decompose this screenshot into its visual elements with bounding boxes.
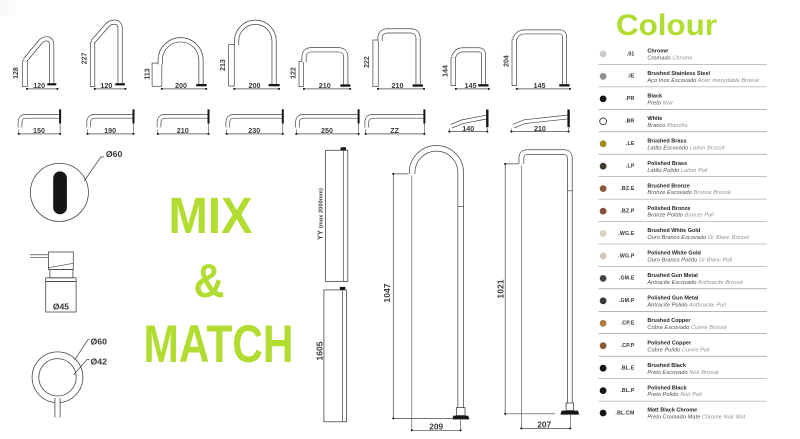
svg-text:113: 113: [144, 68, 151, 79]
svg-text:1047: 1047: [382, 283, 392, 302]
svg-text:Bronze Escovado Bronze Brossé: Bronze Escovado Bronze Brossé: [647, 190, 731, 196]
svg-text:Polished Gun Metal: Polished Gun Metal: [647, 296, 699, 302]
svg-text:.CP.E: .CP.E: [621, 321, 635, 327]
svg-text:Polished Brass: Polished Brass: [647, 161, 687, 167]
svg-text:Polished White Gold: Polished White Gold: [647, 251, 700, 257]
svg-text:Cobre Escovado Cuivre Brossé: Cobre Escovado Cuivre Brossé: [647, 325, 727, 331]
svg-text:Brushed Bronze: Brushed Bronze: [647, 183, 689, 189]
svg-text:Brushed Stainless Steel: Brushed Stainless Steel: [647, 71, 710, 77]
svg-text:.01: .01: [627, 51, 635, 57]
svg-text:144: 144: [443, 65, 450, 77]
svg-text:207: 207: [537, 420, 551, 430]
svg-text:.BR: .BR: [625, 119, 635, 125]
svg-text:.BZ.P: .BZ.P: [620, 208, 635, 214]
svg-text:227: 227: [81, 52, 88, 64]
svg-text:Brushed Black: Brushed Black: [647, 363, 686, 369]
svg-text:1021: 1021: [496, 279, 506, 298]
svg-text:Brushed Brass: Brushed Brass: [647, 139, 686, 145]
svg-text:1605: 1605: [314, 341, 324, 360]
svg-text:122: 122: [290, 67, 297, 79]
svg-text:210: 210: [534, 124, 546, 133]
svg-text:ZZ: ZZ: [390, 126, 399, 135]
svg-text:Ø45: Ø45: [53, 302, 70, 312]
svg-text:Brushed Copper: Brushed Copper: [647, 318, 691, 324]
svg-text:213: 213: [220, 59, 227, 71]
svg-text:.GM.E: .GM.E: [619, 276, 635, 282]
svg-text:Matt Black Chrome: Matt Black Chrome: [647, 408, 697, 414]
svg-text:145: 145: [534, 81, 546, 90]
svg-text:Latão Polido Laiton Poli: Latão Polido Laiton Poli: [647, 168, 708, 174]
svg-text:120: 120: [100, 81, 112, 90]
svg-text:.LP: .LP: [626, 164, 635, 170]
svg-text:250: 250: [321, 126, 333, 135]
svg-text:210: 210: [392, 81, 404, 90]
svg-text:Polished Bronze: Polished Bronze: [647, 206, 690, 212]
svg-text:200: 200: [175, 81, 187, 90]
svg-text:Preto Escovado Noir Brossé: Preto Escovado Noir Brossé: [647, 370, 719, 376]
svg-text:Polished Copper: Polished Copper: [647, 340, 692, 346]
svg-text:&: &: [194, 254, 225, 307]
svg-text:Ouro Branco Polido Or Blanc Po: Ouro Branco Polido Or Blanc Poli: [647, 258, 733, 264]
svg-text:128: 128: [13, 67, 20, 79]
svg-text:Chrome: Chrome: [647, 49, 668, 55]
svg-text:MIX: MIX: [169, 187, 253, 244]
svg-text:222: 222: [364, 56, 371, 68]
svg-text:Antracite Polido Anthracite Po: Antracite Polido Anthracite Poli: [646, 302, 726, 308]
svg-text:140: 140: [462, 124, 474, 133]
svg-text:.PR: .PR: [625, 96, 634, 102]
svg-text:Brushed White Gold: Brushed White Gold: [647, 228, 700, 234]
svg-text:200: 200: [249, 81, 261, 90]
svg-text:Bronze Polido Bronze Poli: Bronze Polido Bronze Poli: [647, 213, 714, 219]
svg-text:.WG.E: .WG.E: [618, 231, 635, 237]
svg-text:150: 150: [33, 126, 45, 135]
svg-text:Preto Cromado Mate Chrome Noir: Preto Cromado Mate Chrome Noir Mat: [647, 415, 745, 421]
svg-text:Ø42: Ø42: [91, 357, 108, 367]
svg-text:.WG.P: .WG.P: [618, 253, 635, 259]
svg-text:Latão Escovado Laiton Brossé: Latão Escovado Laiton Brossé: [647, 145, 724, 151]
svg-text:.LE: .LE: [626, 141, 635, 147]
svg-text:.BL.CM: .BL.CM: [615, 410, 634, 416]
svg-text:Black: Black: [647, 94, 663, 100]
svg-text:Antracite Escovado Anthracite: Antracite Escovado Anthracite Brossé: [646, 280, 743, 286]
svg-text:Cobre Polido Cuivre Poli: Cobre Polido Cuivre Poli: [647, 347, 710, 353]
svg-text:MATCH: MATCH: [144, 315, 294, 374]
svg-text:230: 230: [248, 126, 260, 135]
svg-text:204: 204: [503, 55, 510, 67]
svg-text:Ø60: Ø60: [91, 337, 108, 347]
svg-text:Colour: Colour: [616, 9, 718, 42]
svg-text:Brushed Gun Metal: Brushed Gun Metal: [647, 273, 698, 279]
svg-text:Cromado Chrome: Cromado Chrome: [647, 56, 692, 62]
svg-text:145: 145: [465, 81, 477, 90]
svg-text:.BZ.E: .BZ.E: [620, 186, 635, 192]
svg-text:Preto Polido Noir Poli: Preto Polido Noir Poli: [647, 392, 702, 398]
svg-text:Ø60: Ø60: [106, 149, 123, 159]
svg-text:190: 190: [104, 126, 116, 135]
svg-text:Aço Inox Escovado Acier Inoxyd: Aço Inox Escovado Acier Inoxydable Bross…: [646, 78, 759, 84]
svg-text:Branco Blanche: Branco Blanche: [647, 123, 687, 129]
svg-text:.IE: .IE: [628, 74, 635, 80]
svg-text:.CP.P: .CP.P: [621, 343, 635, 349]
svg-text:Ouro Branco Escovado Or Blanc: Ouro Branco Escovado Or Blanc Brossé: [647, 235, 749, 241]
svg-text:120: 120: [33, 81, 45, 90]
svg-text:.GM.P: .GM.P: [619, 298, 635, 304]
svg-text:209: 209: [429, 421, 443, 431]
svg-text:210: 210: [319, 81, 331, 90]
svg-text:Preto Noir: Preto Noir: [647, 101, 674, 107]
svg-text:Polished Black: Polished Black: [647, 385, 687, 391]
svg-text:.BL.P: .BL.P: [620, 388, 635, 394]
svg-text:White: White: [647, 116, 662, 122]
svg-text:.BL.E: .BL.E: [620, 366, 635, 372]
svg-text:210: 210: [177, 126, 189, 135]
